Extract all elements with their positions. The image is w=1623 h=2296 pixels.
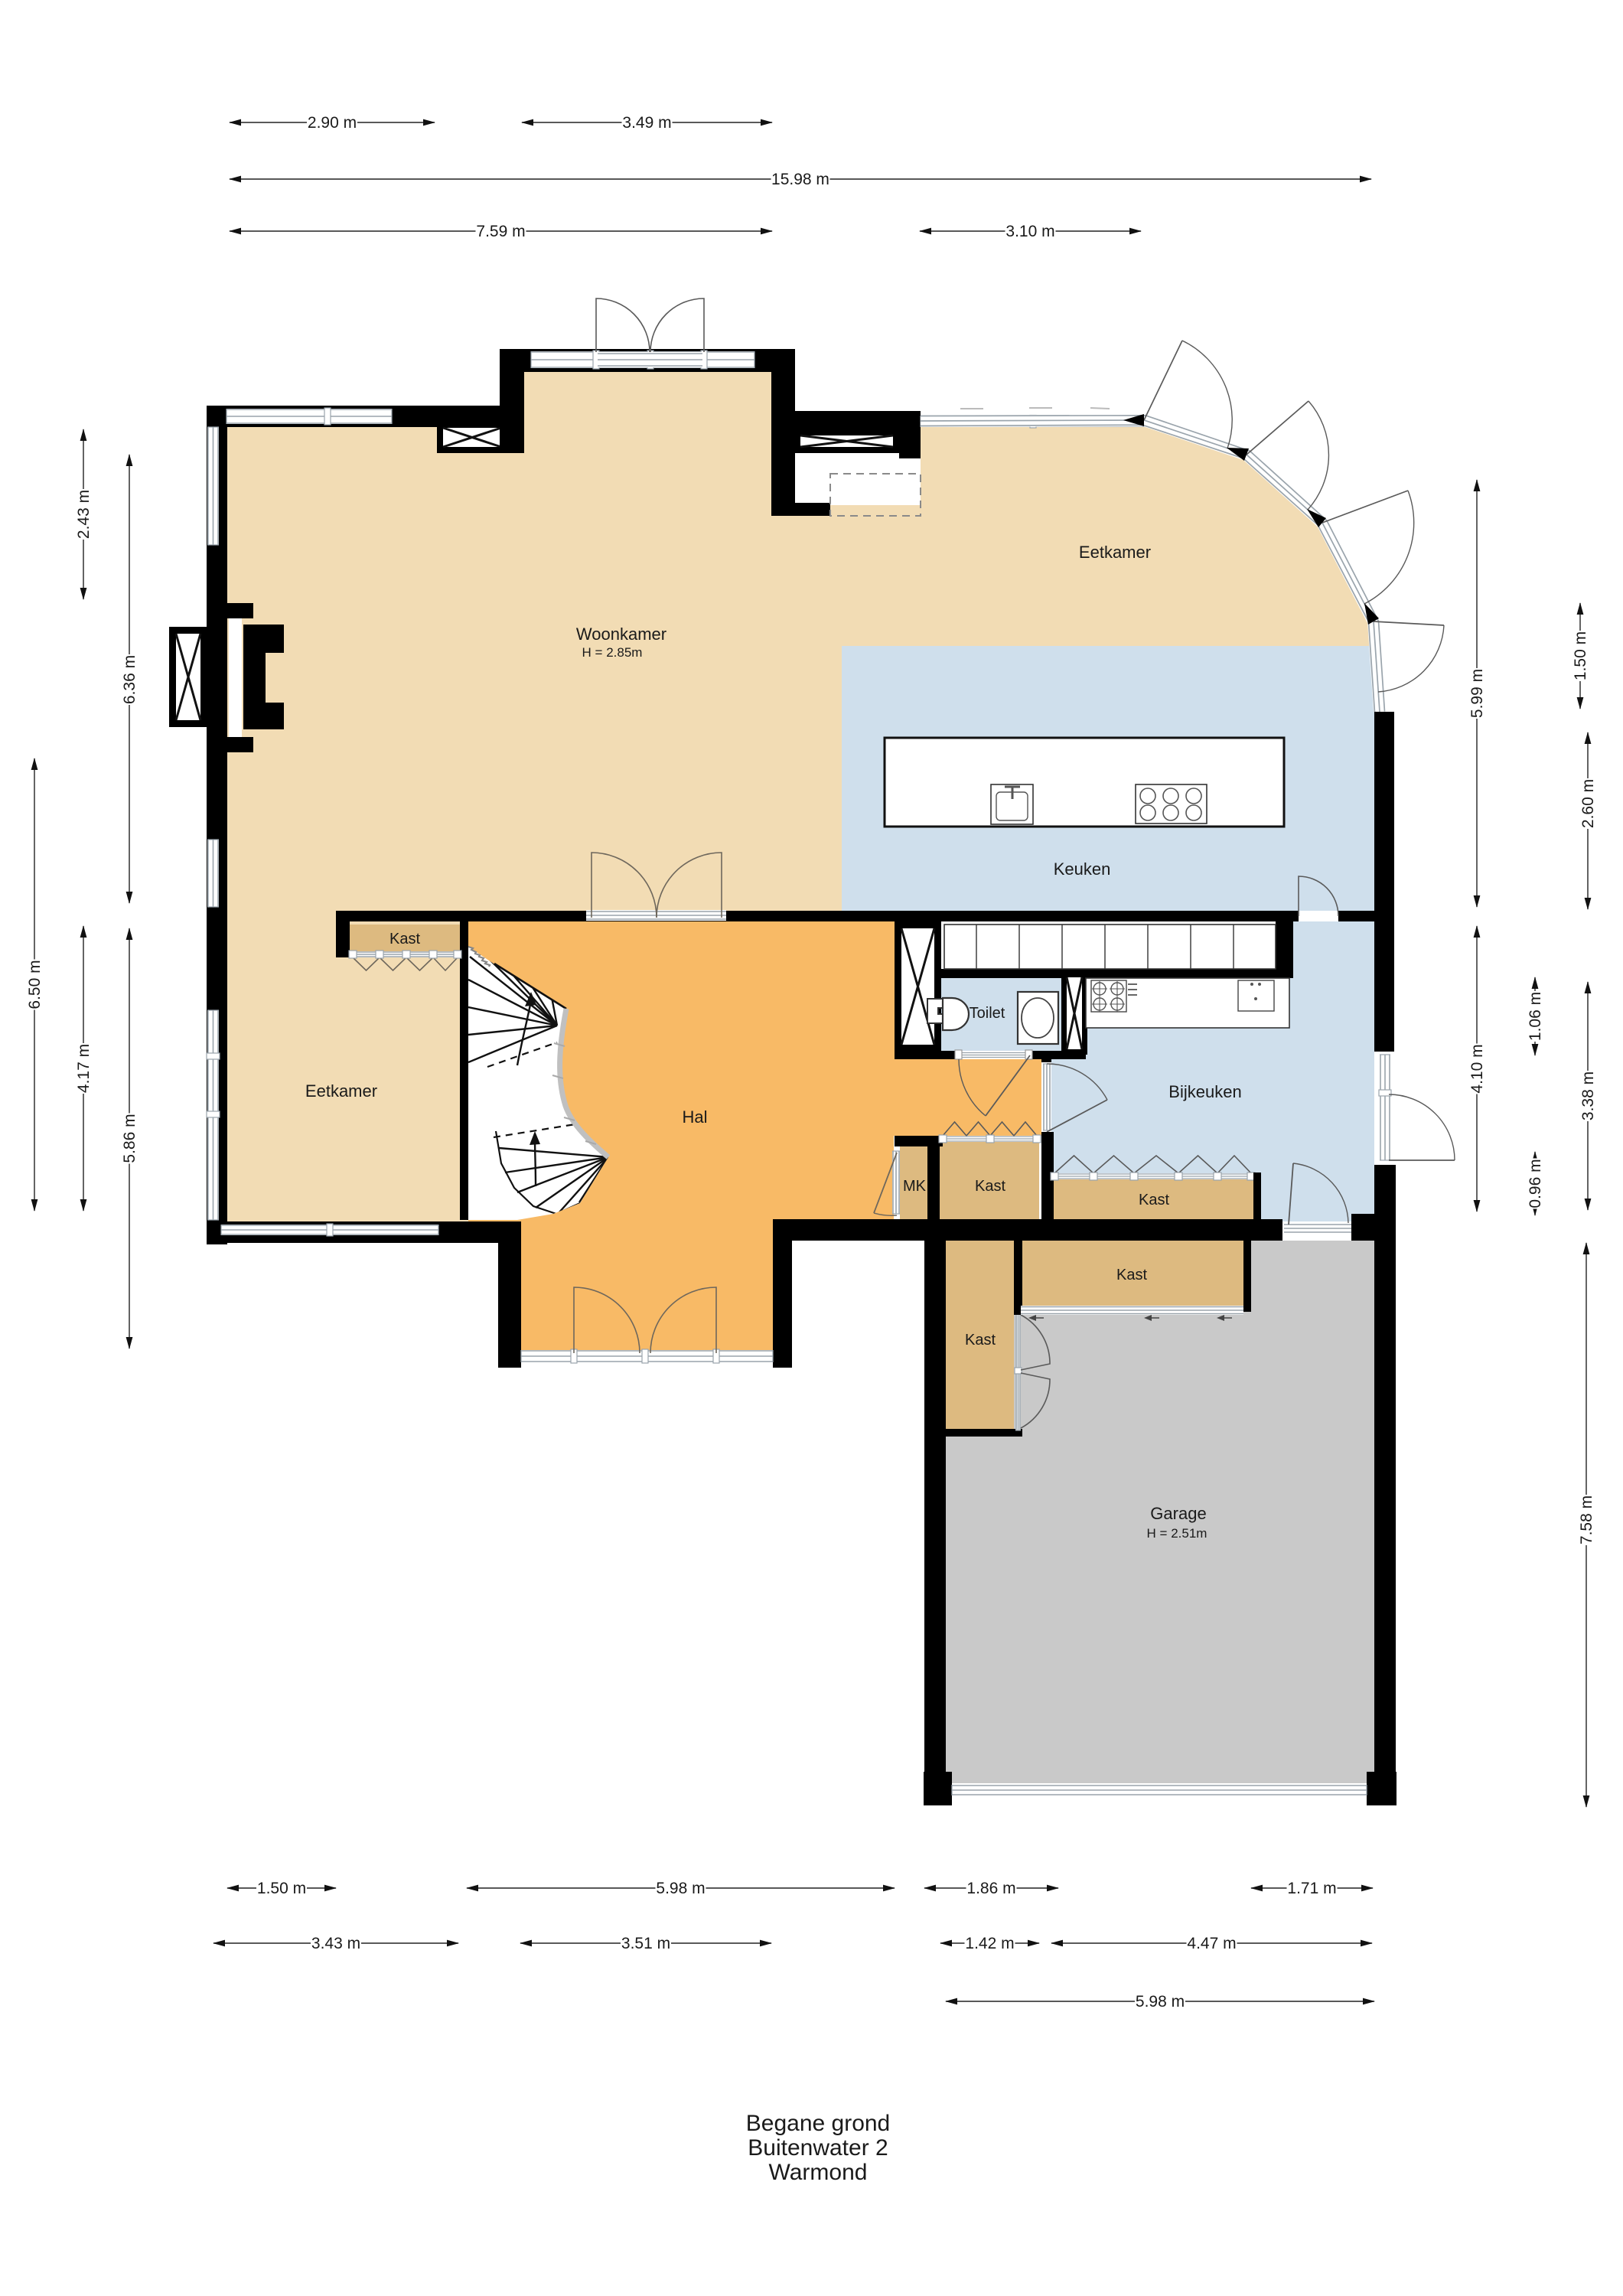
svg-text:Hal: Hal	[682, 1107, 707, 1127]
svg-text:7.58 m: 7.58 m	[1578, 1495, 1595, 1544]
svg-text:4.10 m: 4.10 m	[1468, 1044, 1486, 1093]
svg-text:2.90 m: 2.90 m	[308, 114, 357, 132]
svg-text:1.42 m: 1.42 m	[965, 1935, 1014, 1952]
svg-text:0.96 m: 0.96 m	[1527, 1159, 1544, 1208]
svg-text:Kast: Kast	[965, 1332, 996, 1349]
svg-text:3.51 m: 3.51 m	[621, 1935, 670, 1952]
svg-text:Toilet: Toilet	[970, 1005, 1005, 1022]
svg-text:5.98 m: 5.98 m	[1136, 1993, 1185, 2011]
svg-text:Bijkeuken: Bijkeuken	[1168, 1082, 1241, 1101]
svg-text:5.86 m: 5.86 m	[121, 1114, 139, 1163]
svg-text:7.59 m: 7.59 m	[476, 223, 525, 240]
svg-text:4.47 m: 4.47 m	[1187, 1935, 1236, 1952]
svg-text:Buitenwater 2: Buitenwater 2	[748, 2135, 888, 2161]
svg-text:H = 2.51m: H = 2.51m	[1147, 1526, 1207, 1541]
svg-text:Eetkamer: Eetkamer	[305, 1081, 377, 1101]
svg-text:1.50 m: 1.50 m	[1572, 631, 1589, 680]
svg-text:1.86 m: 1.86 m	[966, 1880, 1015, 1897]
svg-text:Garage: Garage	[1150, 1504, 1206, 1523]
svg-text:1.50 m: 1.50 m	[257, 1880, 306, 1897]
svg-text:3.38 m: 3.38 m	[1579, 1071, 1597, 1120]
svg-text:3.43 m: 3.43 m	[311, 1935, 360, 1952]
svg-text:6.50 m: 6.50 m	[26, 960, 44, 1009]
svg-text:15.98 m: 15.98 m	[771, 171, 829, 188]
svg-text:2.43 m: 2.43 m	[75, 490, 93, 539]
svg-text:5.98 m: 5.98 m	[656, 1880, 705, 1897]
svg-text:1.71 m: 1.71 m	[1287, 1880, 1336, 1897]
svg-text:3.10 m: 3.10 m	[1005, 223, 1054, 240]
svg-text:Begane grond: Begane grond	[746, 2111, 891, 2136]
svg-text:Keuken: Keuken	[1054, 859, 1111, 879]
svg-text:Kast: Kast	[975, 1178, 1005, 1195]
svg-text:6.36 m: 6.36 m	[121, 655, 139, 704]
svg-text:Eetkamer: Eetkamer	[1079, 543, 1151, 562]
svg-text:Kast: Kast	[1116, 1267, 1147, 1283]
svg-text:2.60 m: 2.60 m	[1579, 779, 1597, 828]
svg-text:1.06 m: 1.06 m	[1527, 992, 1544, 1041]
svg-text:MK: MK	[903, 1178, 927, 1195]
svg-text:3.49 m: 3.49 m	[622, 114, 671, 132]
svg-text:4.17 m: 4.17 m	[75, 1044, 93, 1093]
svg-text:Woonkamer: Woonkamer	[576, 625, 666, 644]
svg-text:5.99 m: 5.99 m	[1468, 669, 1486, 718]
svg-text:Kast: Kast	[389, 931, 420, 947]
svg-text:Kast: Kast	[1139, 1192, 1169, 1208]
svg-text:H = 2.85m: H = 2.85m	[582, 645, 643, 660]
svg-text:Warmond: Warmond	[769, 2160, 868, 2185]
